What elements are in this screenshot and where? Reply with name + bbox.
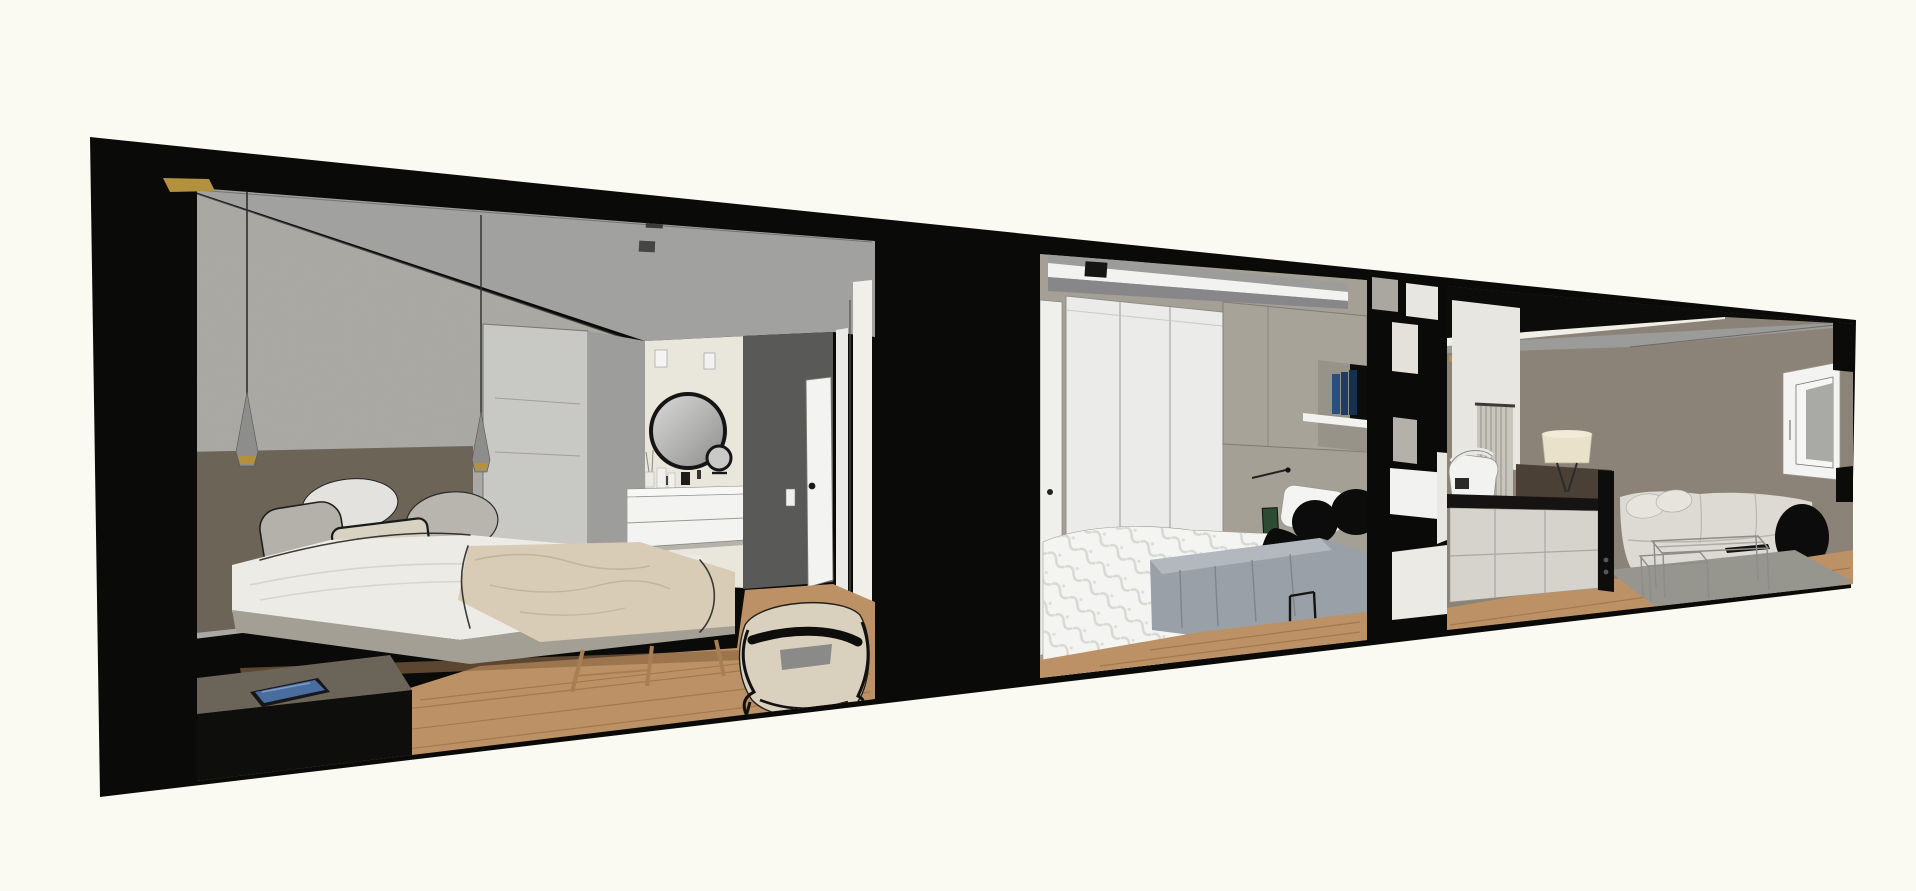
bathroom-door bbox=[806, 377, 833, 587]
wardrobe bbox=[1066, 296, 1223, 562]
window-glass bbox=[1806, 383, 1833, 462]
vanity-cabinet bbox=[627, 486, 745, 553]
apartment-cutaway-render bbox=[0, 0, 1916, 891]
books bbox=[1332, 374, 1340, 414]
ceiling-spotlight bbox=[1084, 261, 1107, 277]
gold-accent bbox=[163, 178, 215, 192]
light-switch bbox=[786, 489, 795, 506]
room-second-bedroom bbox=[1040, 250, 1381, 682]
apartment-render-page bbox=[0, 0, 1916, 891]
room-master-bedroom bbox=[186, 186, 875, 790]
food-processor bbox=[1449, 450, 1498, 497]
